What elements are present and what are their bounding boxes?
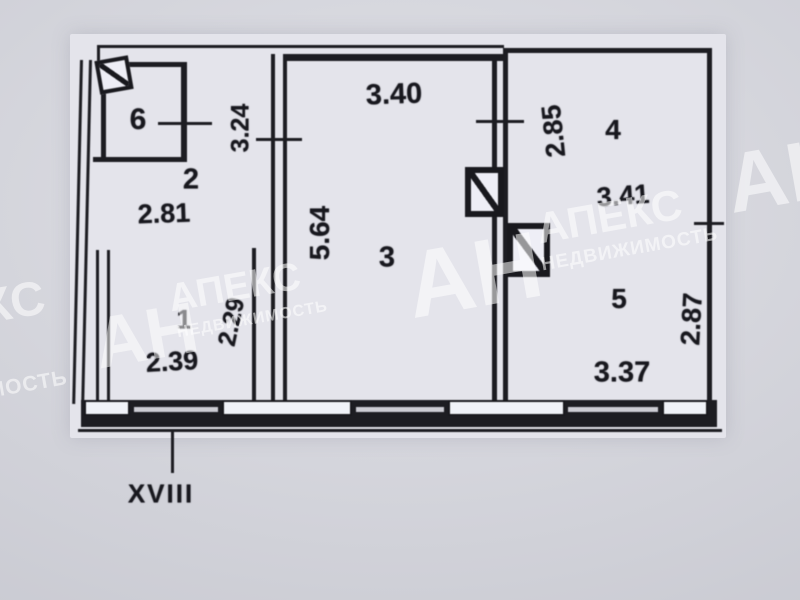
watermark-an: АН [399,217,549,333]
window [222,400,352,416]
section-label: XVIII [128,479,194,510]
window [448,400,565,416]
watermark-an: АН [720,122,800,226]
window-wall-band [81,400,717,427]
room6-wall-right [181,62,187,162]
dim-room3-depth: 5.64 [304,206,336,261]
outer-wall-left-b [81,60,92,404]
section-leader-line [171,431,174,473]
outer-wall-top [97,45,504,48]
dim-tick-wall23 [256,138,302,141]
dim-room2-width: 2.81 [137,198,191,231]
window [662,400,708,416]
window-sill-stripe [568,407,658,412]
room3-wall-top [283,54,505,61]
room6-wall-bottom [93,157,187,162]
dim-room4-depth: 2.85 [536,103,572,159]
dim-tick-room6 [158,122,212,125]
window [84,400,130,416]
facade-line [78,429,722,432]
room-6-label: 6 [130,103,147,137]
room-2-label: 2 [183,164,199,197]
dim-tick-wall34 [476,120,524,123]
rooms45-wall-top [505,48,712,53]
room-5-label: 5 [611,283,627,315]
wall-rooms12-room3-b [283,54,287,402]
room-3-label: 3 [379,242,395,275]
dim-room2-depth: 3.24 [227,104,256,153]
door-notch-icon [94,55,133,94]
dim-room5-width: 3.37 [594,357,650,390]
window-sill-stripe [356,407,444,412]
window-sill-stripe [134,407,218,412]
floor-plan-photo: XVIII 6 2 1 3 4 5 2.81 3.24 2.39 2.29 3.… [0,0,800,600]
room-4-label: 4 [605,114,621,146]
dim-room3-width: 3.40 [365,78,423,113]
vent-shaft-icon [465,167,504,217]
dim-room5-depth: 2.87 [675,292,709,346]
wall-rooms12-room3-a [271,54,275,402]
